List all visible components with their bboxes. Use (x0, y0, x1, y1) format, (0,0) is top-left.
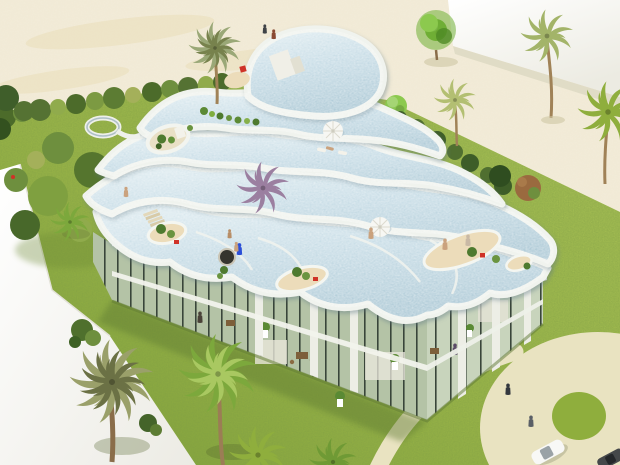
fire-pit (219, 249, 235, 265)
red-deck-chair (480, 253, 485, 258)
red-deck-chair (313, 277, 318, 281)
hedge-bush (142, 82, 162, 102)
plaza-center-lawn (552, 392, 606, 440)
rendering-canvas (0, 0, 620, 465)
rust-tree (515, 175, 541, 201)
hedge-bush (125, 87, 141, 103)
hedge-bush (103, 87, 125, 109)
hedge-bush (50, 99, 66, 115)
flower-accent (11, 175, 15, 179)
hedge-bush (86, 92, 104, 110)
hedge-bush (66, 94, 86, 114)
dark-tree (489, 165, 511, 187)
red-deck-chair (174, 240, 179, 244)
